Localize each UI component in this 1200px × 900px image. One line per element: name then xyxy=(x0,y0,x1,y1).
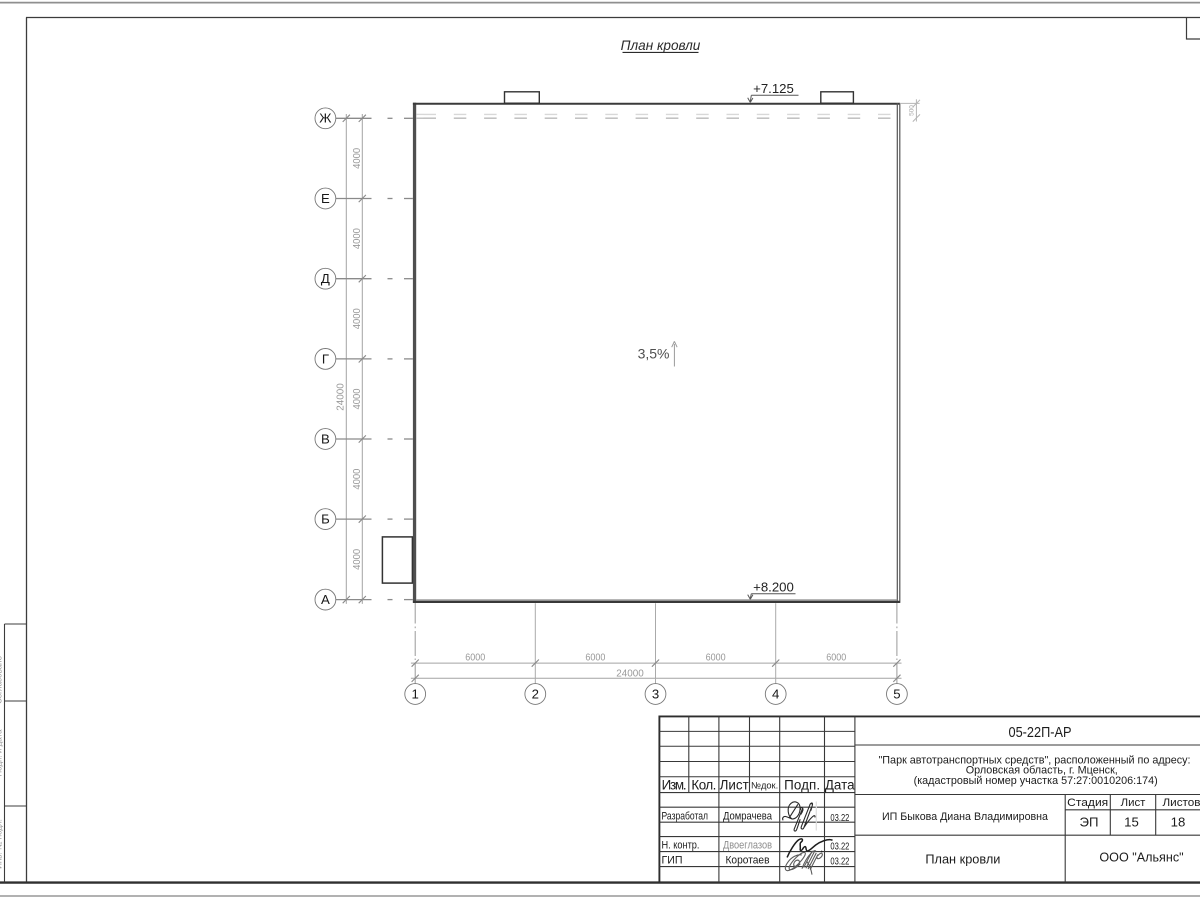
svg-text:4000: 4000 xyxy=(352,308,363,329)
svg-text:Кол.: Кол. xyxy=(691,777,716,792)
svg-text:4000: 4000 xyxy=(352,228,363,249)
svg-text:Е: Е xyxy=(321,191,330,206)
svg-text:24000: 24000 xyxy=(616,668,644,680)
svg-text:03.22: 03.22 xyxy=(830,842,849,853)
svg-text:+8.200: +8.200 xyxy=(753,580,794,595)
svg-text:Ж: Ж xyxy=(319,111,331,126)
svg-text:Подп.: Подп. xyxy=(784,777,820,792)
svg-text:В: В xyxy=(321,431,330,446)
svg-text:18: 18 xyxy=(1171,814,1186,829)
svg-text:6000: 6000 xyxy=(826,651,846,663)
svg-text:План кровли: План кровли xyxy=(621,38,701,53)
svg-text:03.22: 03.22 xyxy=(830,813,849,824)
svg-text:Подп. и дата: Подп. и дата xyxy=(0,729,4,777)
svg-text:ИП Быкова Диана Владимировна: ИП Быкова Диана Владимировна xyxy=(882,811,1049,823)
svg-text:05-22П-АР: 05-22П-АР xyxy=(1009,725,1072,741)
svg-text:4000: 4000 xyxy=(352,468,363,489)
svg-text:4000: 4000 xyxy=(352,147,363,168)
svg-text:ЭП: ЭП xyxy=(1080,814,1099,829)
svg-text:Лист: Лист xyxy=(720,777,749,792)
svg-text:4000: 4000 xyxy=(352,548,363,569)
svg-text:Коротаев: Коротаев xyxy=(726,855,770,867)
svg-text:Двоеглазов: Двоеглазов xyxy=(723,840,772,852)
svg-text:5: 5 xyxy=(893,686,900,701)
svg-text:6000: 6000 xyxy=(465,651,485,663)
svg-text:Домрачева: Домрачева xyxy=(723,811,773,823)
svg-text:(кадастровый номер участка 57:: (кадастровый номер участка 57:27:0010206… xyxy=(914,775,1158,787)
svg-text:24000: 24000 xyxy=(335,383,346,411)
svg-text:+7.125: +7.125 xyxy=(753,81,794,96)
svg-text:№док.: №док. xyxy=(751,780,778,790)
svg-text:3: 3 xyxy=(652,686,659,701)
svg-text:Изм.: Изм. xyxy=(662,777,687,792)
svg-text:Н. контр.: Н. контр. xyxy=(662,840,700,852)
svg-text:А: А xyxy=(321,592,330,607)
svg-text:ООО "Альянс": ООО "Альянс" xyxy=(1099,851,1183,865)
svg-text:Листов: Листов xyxy=(1163,797,1200,809)
svg-text:6000: 6000 xyxy=(585,651,605,663)
svg-text:03.22: 03.22 xyxy=(830,857,849,868)
svg-text:2: 2 xyxy=(532,686,539,701)
svg-text:Г: Г xyxy=(322,351,329,366)
svg-text:Стадия: Стадия xyxy=(1067,797,1108,809)
svg-text:Согласовано: Согласовано xyxy=(0,655,4,704)
svg-text:Д: Д xyxy=(321,271,330,286)
svg-text:Лист: Лист xyxy=(1121,797,1147,809)
svg-text:Дата: Дата xyxy=(825,777,855,792)
svg-text:4000: 4000 xyxy=(352,388,363,409)
svg-text:Разработал: Разработал xyxy=(662,811,709,823)
svg-text:3,5%: 3,5% xyxy=(638,346,670,362)
svg-text:6000: 6000 xyxy=(706,651,726,663)
svg-text:Инв. № подл.: Инв. № подл. xyxy=(0,819,4,869)
svg-text:ГИП: ГИП xyxy=(662,855,683,867)
svg-text:1: 1 xyxy=(412,686,419,701)
svg-text:План кровли: План кровли xyxy=(925,852,1000,866)
svg-text:15: 15 xyxy=(1124,814,1139,829)
svg-text:Б: Б xyxy=(321,512,330,527)
svg-text:4: 4 xyxy=(772,686,779,701)
svg-text:500: 500 xyxy=(909,105,916,116)
